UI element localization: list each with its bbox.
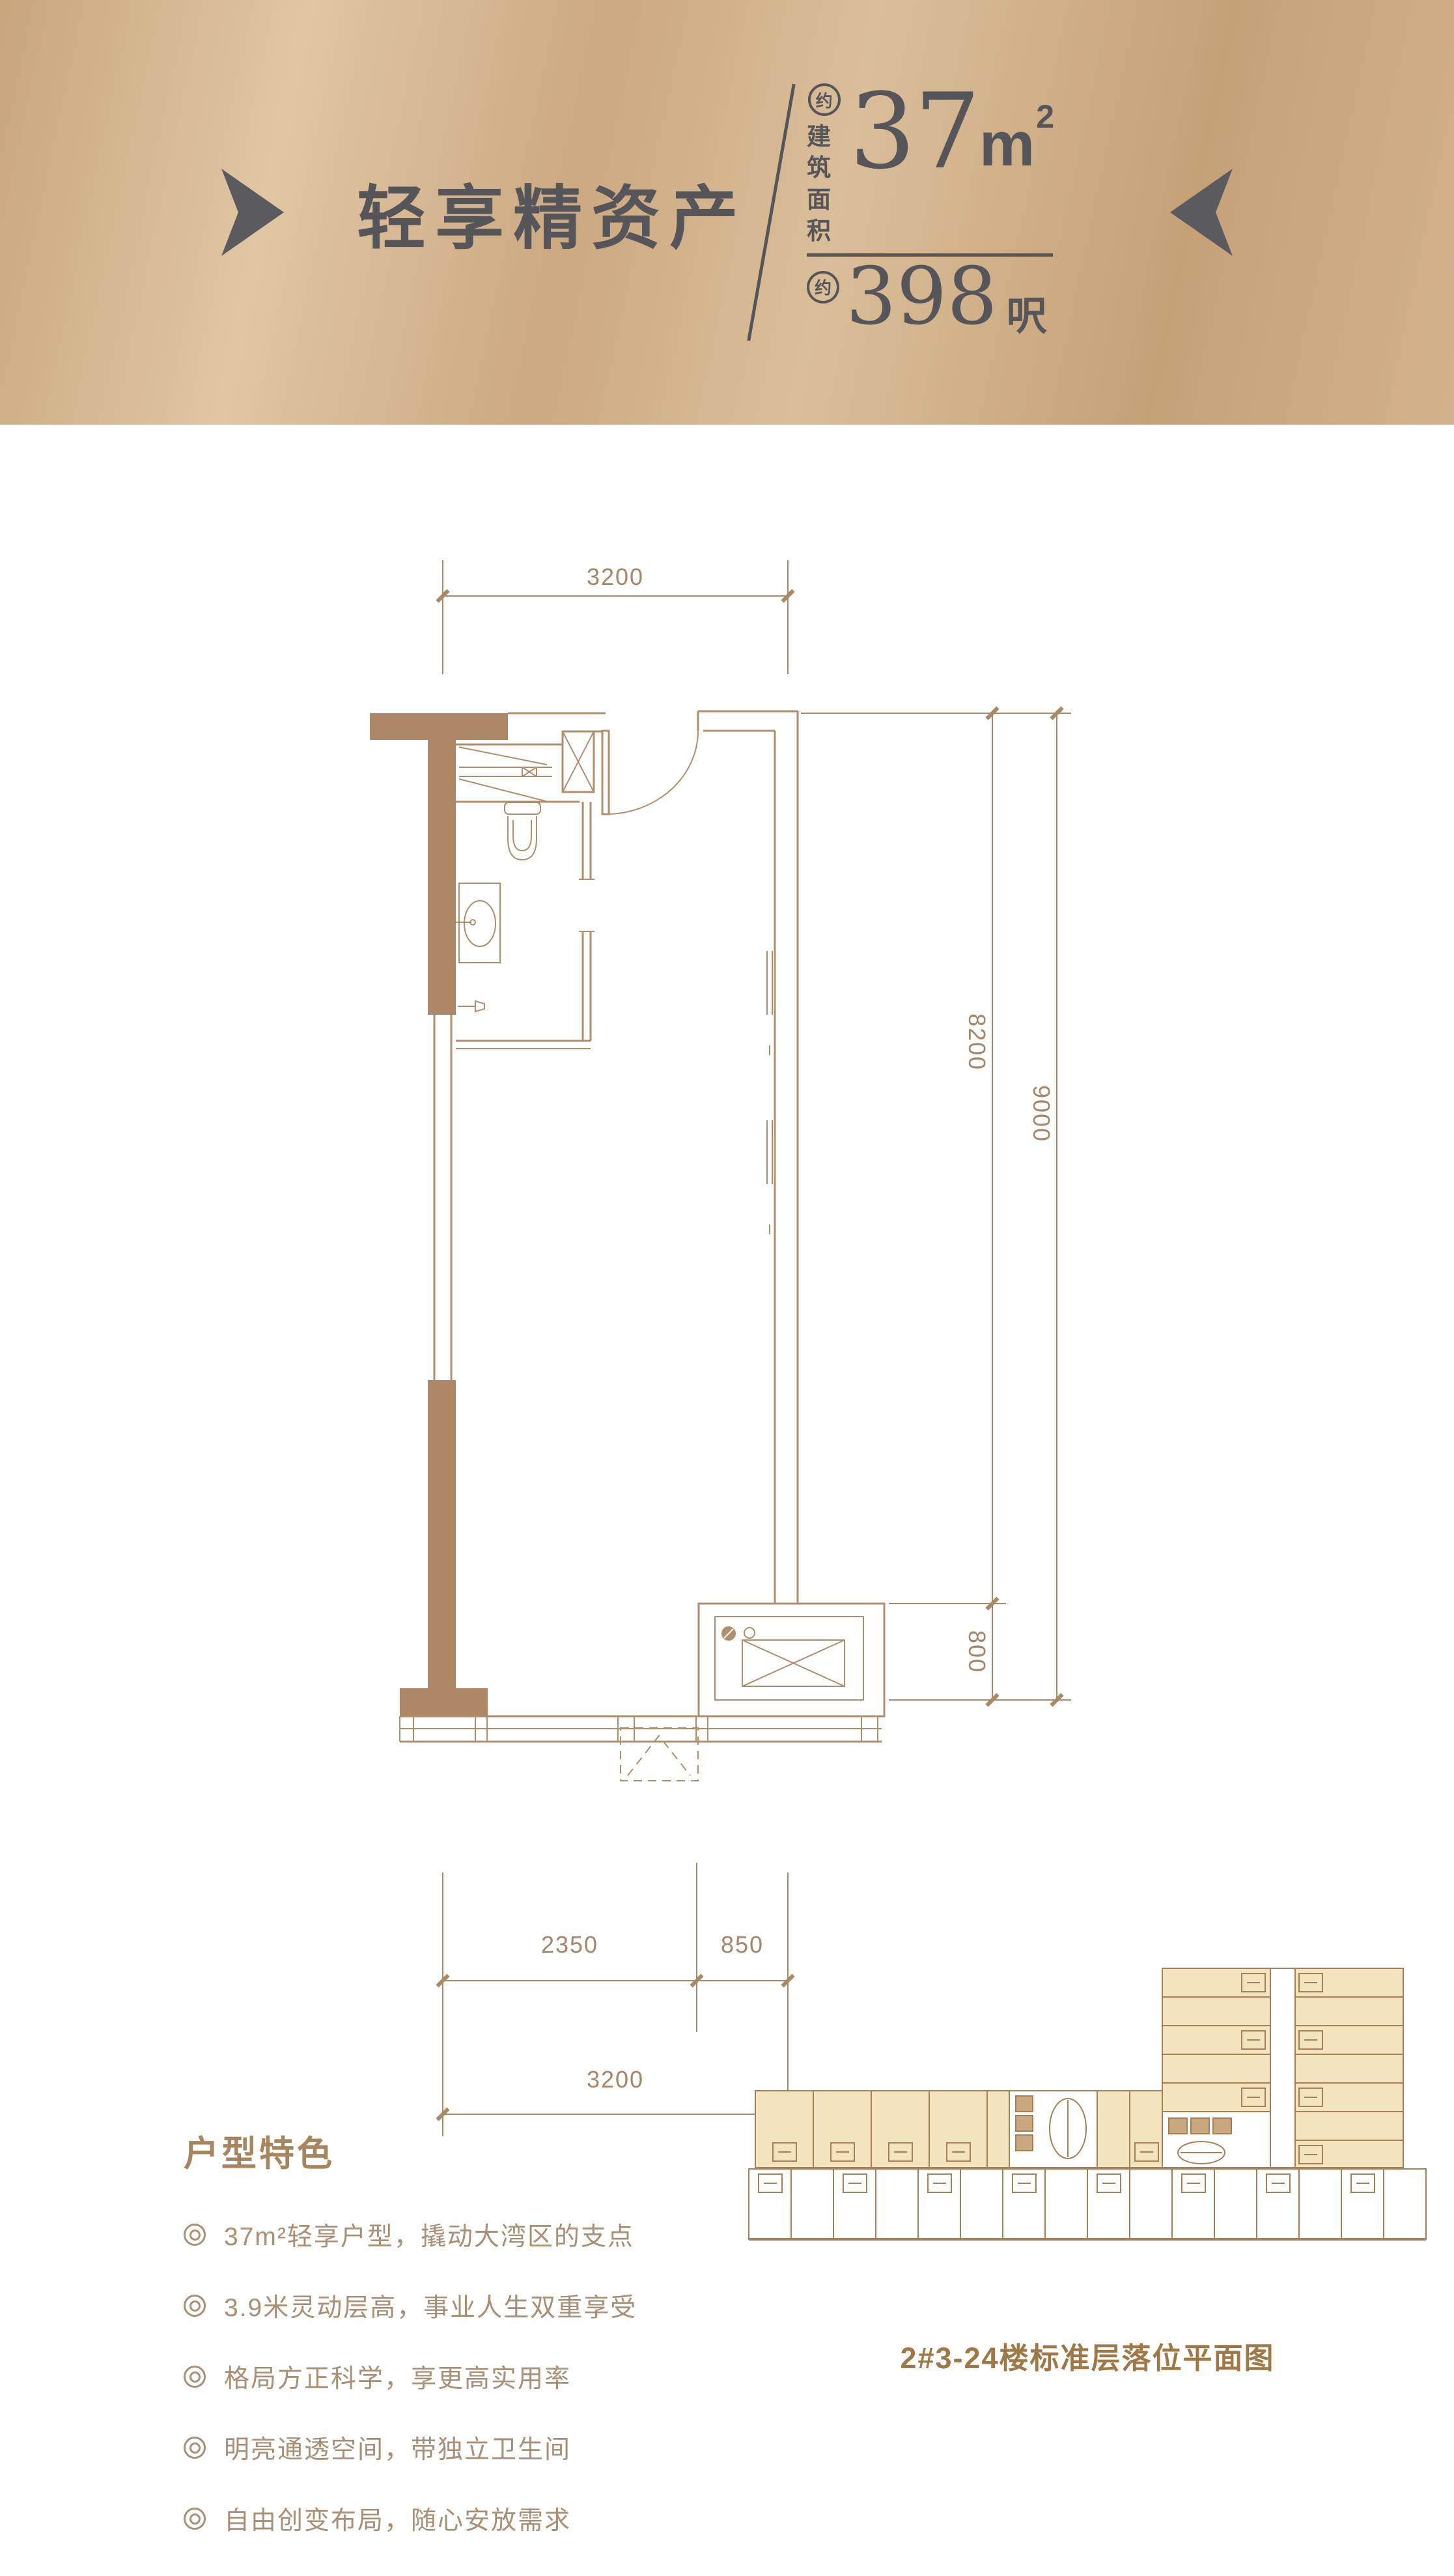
bullseye-icon (184, 2437, 206, 2459)
dim-bottom-total: 3200 (587, 2066, 644, 2093)
entry-door-leaf (602, 731, 609, 814)
bathroom (456, 731, 594, 1049)
bullseye-inner-icon (189, 2229, 201, 2241)
bullseye-inner-icon (189, 2442, 201, 2454)
vanity-sink (456, 883, 500, 963)
area-block: 约 建筑 面积 37 m2 约 398 呎 (807, 83, 1053, 341)
bullseye-icon (184, 2295, 206, 2317)
dim-right-inner: 8200 (964, 1013, 990, 1071)
dim-bottom-left: 2350 (541, 1931, 598, 1958)
bullseye-icon (184, 2508, 206, 2530)
feature-item: 37m²轻享户型，撬动大湾区的支点 (184, 2216, 757, 2253)
approx-badge-2: 约 (807, 271, 839, 304)
area-label-line2: 面积 (807, 184, 841, 247)
dimensions: 3200 8200 9000 800 2350 850 3200 (438, 560, 1071, 2136)
closet-shelf (459, 747, 552, 801)
dimension-lines (443, 560, 1071, 2136)
wall-fills (370, 713, 508, 1716)
right-chevron-icon (221, 169, 284, 256)
feature-text: 格局方正科学，享更高实用率 (224, 2358, 571, 2395)
kitchen (699, 1604, 884, 1716)
feature-item: 明亮通透空间，带独立卫生间 (184, 2429, 757, 2466)
header-banner: 轻享精资产 约 建筑 面积 37 m2 约 398 呎 (0, 0, 1454, 425)
stove-knob (744, 1628, 755, 1638)
bullseye-icon (184, 2366, 206, 2388)
sqm-superscript: 2 (1036, 98, 1054, 135)
feature-item: 自由创变布局，随心安放需求 (184, 2500, 757, 2537)
slash-divider (747, 84, 795, 341)
bullseye-icon (184, 2224, 206, 2246)
dim-kitchen-depth: 800 (964, 1630, 990, 1673)
page: 轻享精资产 约 建筑 面积 37 m2 约 398 呎 (0, 0, 1454, 2576)
floor-plan-svg: 3200 8200 9000 800 2350 850 3200 (352, 534, 1107, 2143)
key-plan-svg (746, 1962, 1429, 2248)
tower-core (1162, 2112, 1270, 2168)
keyplan-bottom-band (749, 2169, 1426, 2239)
sqm-value: 37 (849, 83, 979, 179)
ac-platform (621, 1728, 698, 1781)
keyplan-wing (755, 2091, 1162, 2168)
sqm-unit-letter: m (979, 109, 1035, 179)
sqft-unit: 呎 (1007, 283, 1047, 341)
page-title: 轻享精资产 (357, 162, 748, 262)
shower-head (458, 1001, 484, 1012)
bullseye-inner-icon (189, 2300, 201, 2312)
dimension-ticks (438, 591, 1063, 2120)
feature-text: 3.9米灵动层高，事业人生双重享受 (224, 2287, 637, 2324)
dim-top-width: 3200 (587, 563, 644, 590)
left-chevron-icon (1170, 169, 1233, 256)
features-section: 户型特色 37m²轻享户型，撬动大湾区的支点 3.9米灵动层高，事业人生双重享受… (184, 2125, 757, 2537)
sqft-value: 398 (846, 263, 998, 331)
feature-text: 自由创变布局，随心安放需求 (224, 2500, 571, 2537)
floor-plan: 3200 8200 9000 800 2350 850 3200 (352, 534, 1107, 2143)
keyplan-tower (1162, 1968, 1403, 2168)
area-sqft-row: 约 398 呎 (807, 263, 1053, 341)
bullseye-inner-icon (189, 2513, 201, 2525)
features-heading: 户型特色 (184, 2125, 757, 2176)
dim-bottom-right: 850 (721, 1931, 764, 1958)
bottom-window-band (400, 1716, 882, 1742)
approx-badge: 约 (808, 83, 841, 116)
walls (400, 711, 882, 1742)
area-label-line1: 建筑 (807, 121, 841, 184)
area-labels: 约 建筑 面积 (807, 83, 841, 246)
bullseye-inner-icon (189, 2371, 201, 2383)
key-plan (746, 1962, 1429, 2248)
duct-shaft (563, 731, 594, 792)
feature-text: 37m²轻享户型，撬动大湾区的支点 (224, 2216, 634, 2253)
toilet (505, 802, 540, 860)
dim-right-outer: 9000 (1028, 1085, 1055, 1142)
sqm-unit: m2 (979, 113, 1053, 176)
right-wall-window-stubs (767, 951, 772, 1234)
feature-item: 3.9米灵动层高，事业人生双重享受 (184, 2287, 757, 2324)
keyplan-caption: 2#3-24楼标准层落位平面图 (729, 2334, 1446, 2377)
entry-door-swing (606, 731, 698, 814)
wing-core (1009, 2091, 1097, 2168)
feature-item: 格局方正科学，享更高实用率 (184, 2358, 757, 2395)
feature-text: 明亮通透空间，带独立卫生间 (224, 2429, 571, 2466)
area-sqm-row: 约 建筑 面积 37 m2 (807, 83, 1053, 246)
